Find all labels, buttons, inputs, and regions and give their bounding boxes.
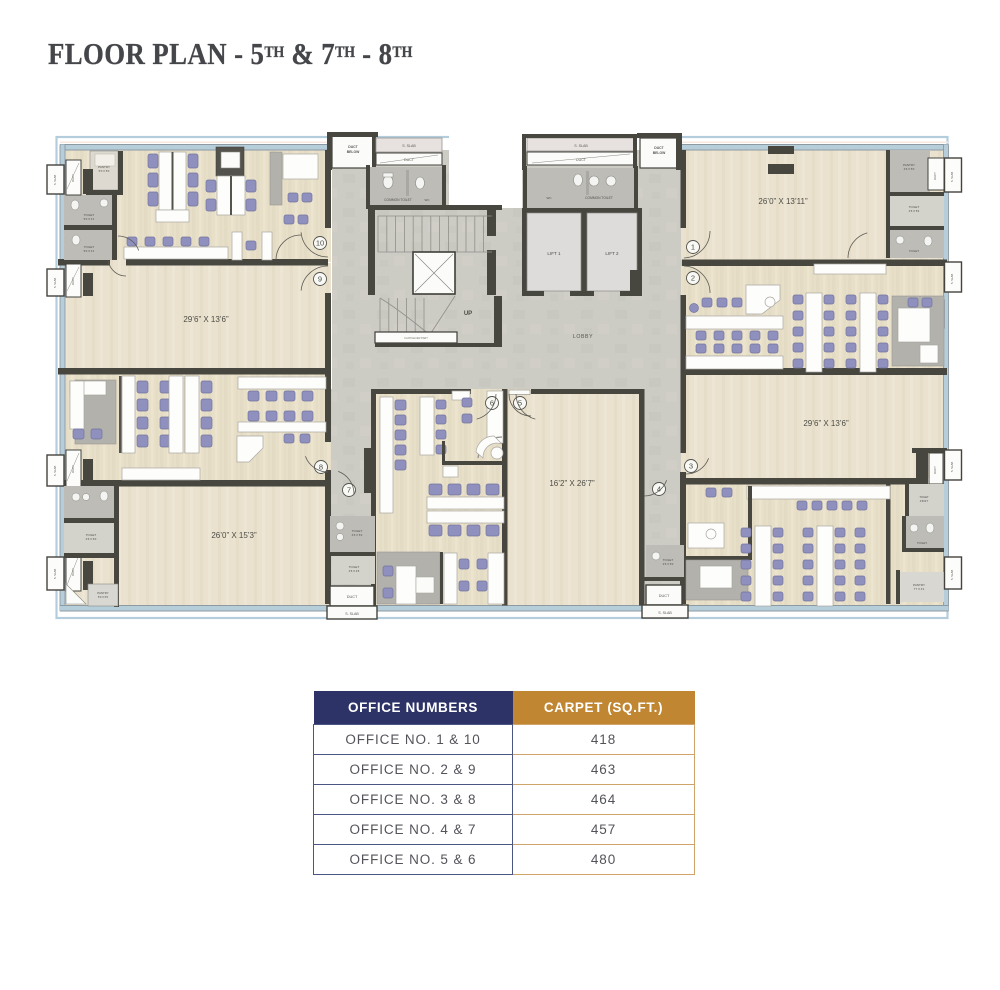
svg-text:BELOW: BELOW bbox=[347, 150, 360, 154]
svg-text:S. SLAB: S. SLAB bbox=[950, 172, 954, 183]
svg-text:S. SLAB: S. SLAB bbox=[950, 462, 954, 473]
svg-text:TOILET: TOILET bbox=[909, 249, 919, 253]
svg-text:DUCT: DUCT bbox=[654, 146, 664, 150]
svg-text:29’6” X 13’6”: 29’6” X 13’6” bbox=[803, 419, 849, 428]
svg-text:26’0” X 15’3”: 26’0” X 15’3” bbox=[211, 531, 257, 540]
svg-text:DUCT: DUCT bbox=[71, 277, 75, 285]
svg-text:29’6” X 13’6”: 29’6” X 13’6” bbox=[183, 315, 229, 324]
svg-text:UP: UP bbox=[464, 311, 472, 317]
svg-text:26’0” X 13’11”: 26’0” X 13’11” bbox=[758, 197, 808, 206]
svg-text:4'6 X 5'4: 4'6 X 5'4 bbox=[909, 209, 920, 213]
svg-text:DUCT: DUCT bbox=[347, 595, 358, 599]
svg-text:5: 5 bbox=[518, 399, 522, 408]
svg-text:3: 3 bbox=[689, 462, 693, 471]
svg-text:7'7 X 4'1: 7'7 X 4'1 bbox=[914, 587, 925, 591]
svg-text:S. SLAB: S. SLAB bbox=[574, 144, 588, 148]
svg-text:TOILET: TOILET bbox=[917, 541, 927, 545]
svg-text:S. SLAB: S. SLAB bbox=[53, 466, 57, 477]
svg-text:9: 9 bbox=[318, 275, 322, 284]
svg-text:S. SLAB: S. SLAB bbox=[658, 611, 672, 615]
svg-text:S. SLAB: S. SLAB bbox=[53, 569, 57, 580]
svg-text:S. SLAB: S. SLAB bbox=[53, 175, 57, 186]
svg-text:LIFT 1: LIFT 1 bbox=[547, 251, 561, 256]
svg-text:2: 2 bbox=[691, 274, 695, 283]
svg-text:COMMON TOILET: COMMON TOILET bbox=[384, 198, 412, 202]
svg-text:DUCT: DUCT bbox=[933, 466, 937, 474]
svg-text:LIFT 2: LIFT 2 bbox=[605, 251, 619, 256]
svg-text:DUCT: DUCT bbox=[71, 465, 75, 473]
svg-text:PANTRY: PANTRY bbox=[97, 591, 109, 595]
svg-text:S. SLAB: S. SLAB bbox=[402, 144, 416, 148]
svg-text:4'6 X 6'0: 4'6 X 6'0 bbox=[663, 562, 674, 566]
svg-text:6: 6 bbox=[490, 399, 494, 408]
svg-text:COMMON TOILET: COMMON TOILET bbox=[585, 196, 613, 200]
svg-text:10: 10 bbox=[316, 239, 324, 248]
svg-text:S. SLAB: S. SLAB bbox=[950, 570, 954, 581]
svg-text:4'6X4'7: 4'6X4'7 bbox=[920, 499, 929, 503]
svg-text:DUCT: DUCT bbox=[348, 145, 358, 149]
svg-text:5'0 X 5'0: 5'0 X 5'0 bbox=[98, 595, 109, 599]
svg-text:DUCT: DUCT bbox=[933, 172, 937, 180]
svg-text:S. SLAB: S. SLAB bbox=[345, 612, 359, 616]
svg-text:4'6 X 6'0: 4'6 X 6'0 bbox=[86, 537, 97, 541]
svg-text:DUCT: DUCT bbox=[71, 174, 75, 182]
svg-text:CANTILEVER PART: CANTILEVER PART bbox=[404, 336, 428, 340]
svg-text:1: 1 bbox=[691, 243, 695, 252]
svg-text:LOBBY: LOBBY bbox=[573, 334, 593, 340]
svg-text:7: 7 bbox=[347, 486, 351, 495]
svg-text:4'6 X 5'2: 4'6 X 5'2 bbox=[352, 533, 363, 537]
svg-text:TOILET: TOILET bbox=[919, 495, 929, 499]
svg-text:BELOW: BELOW bbox=[653, 151, 666, 155]
svg-text:4'6 X 5'0: 4'6 X 5'0 bbox=[904, 167, 915, 171]
svg-text:WC: WC bbox=[547, 196, 553, 200]
svg-text:5'0 X 4'1: 5'0 X 4'1 bbox=[84, 249, 95, 253]
svg-text:S. SLAB: S. SLAB bbox=[53, 278, 57, 289]
svg-text:DUCT: DUCT bbox=[71, 568, 75, 576]
svg-text:16’2” X 26’7”: 16’2” X 26’7” bbox=[549, 479, 595, 488]
svg-text:4'6 X 4'6: 4'6 X 4'6 bbox=[349, 569, 360, 573]
svg-text:S. SLAB: S. SLAB bbox=[950, 274, 954, 285]
svg-text:5'0 X 4'1: 5'0 X 4'1 bbox=[84, 217, 95, 221]
svg-text:DUCT: DUCT bbox=[659, 594, 670, 598]
svg-text:5'0 X 5'0: 5'0 X 5'0 bbox=[99, 169, 110, 173]
svg-text:WC: WC bbox=[425, 198, 431, 202]
